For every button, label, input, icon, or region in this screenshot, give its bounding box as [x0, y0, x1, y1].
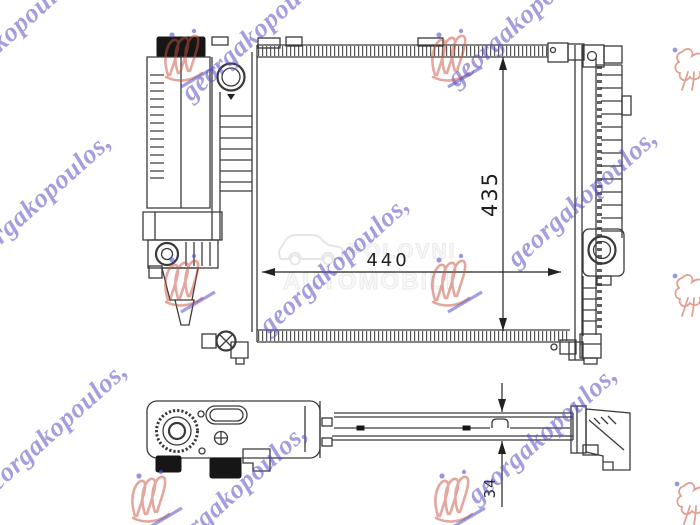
watermark-figure-icon — [673, 274, 700, 316]
height-dimension: 435 — [478, 57, 507, 331]
height-dimension-label: 435 — [478, 171, 502, 217]
watermark-figure-icon — [673, 48, 700, 90]
tank-fins — [150, 75, 164, 178]
side-column-rungs — [220, 116, 252, 191]
radiator-drawing-canvas: POLOVNI AUTOMOBILI — [0, 0, 700, 525]
script-watermark: georgakopoulos, — [0, 0, 87, 111]
bar-clip — [492, 419, 508, 428]
connector-block-left — [156, 456, 181, 472]
bracket-hole — [156, 243, 178, 265]
width-dimension-label: 440 — [366, 250, 409, 271]
watermark-monogram-icon — [132, 470, 182, 525]
bottom-serrated-strip — [257, 330, 570, 342]
script-watermark: georgakopoulos, — [0, 126, 117, 277]
script-watermark: georgakopoulos, — [460, 359, 623, 510]
script-watermark: georgakopoulos, — [0, 355, 133, 506]
lower-bracket — [143, 212, 222, 240]
watermark-figure-icon — [675, 482, 700, 524]
product-image: POLOVNI AUTOMOBILI — [0, 0, 700, 525]
drain-plug — [202, 332, 248, 365]
